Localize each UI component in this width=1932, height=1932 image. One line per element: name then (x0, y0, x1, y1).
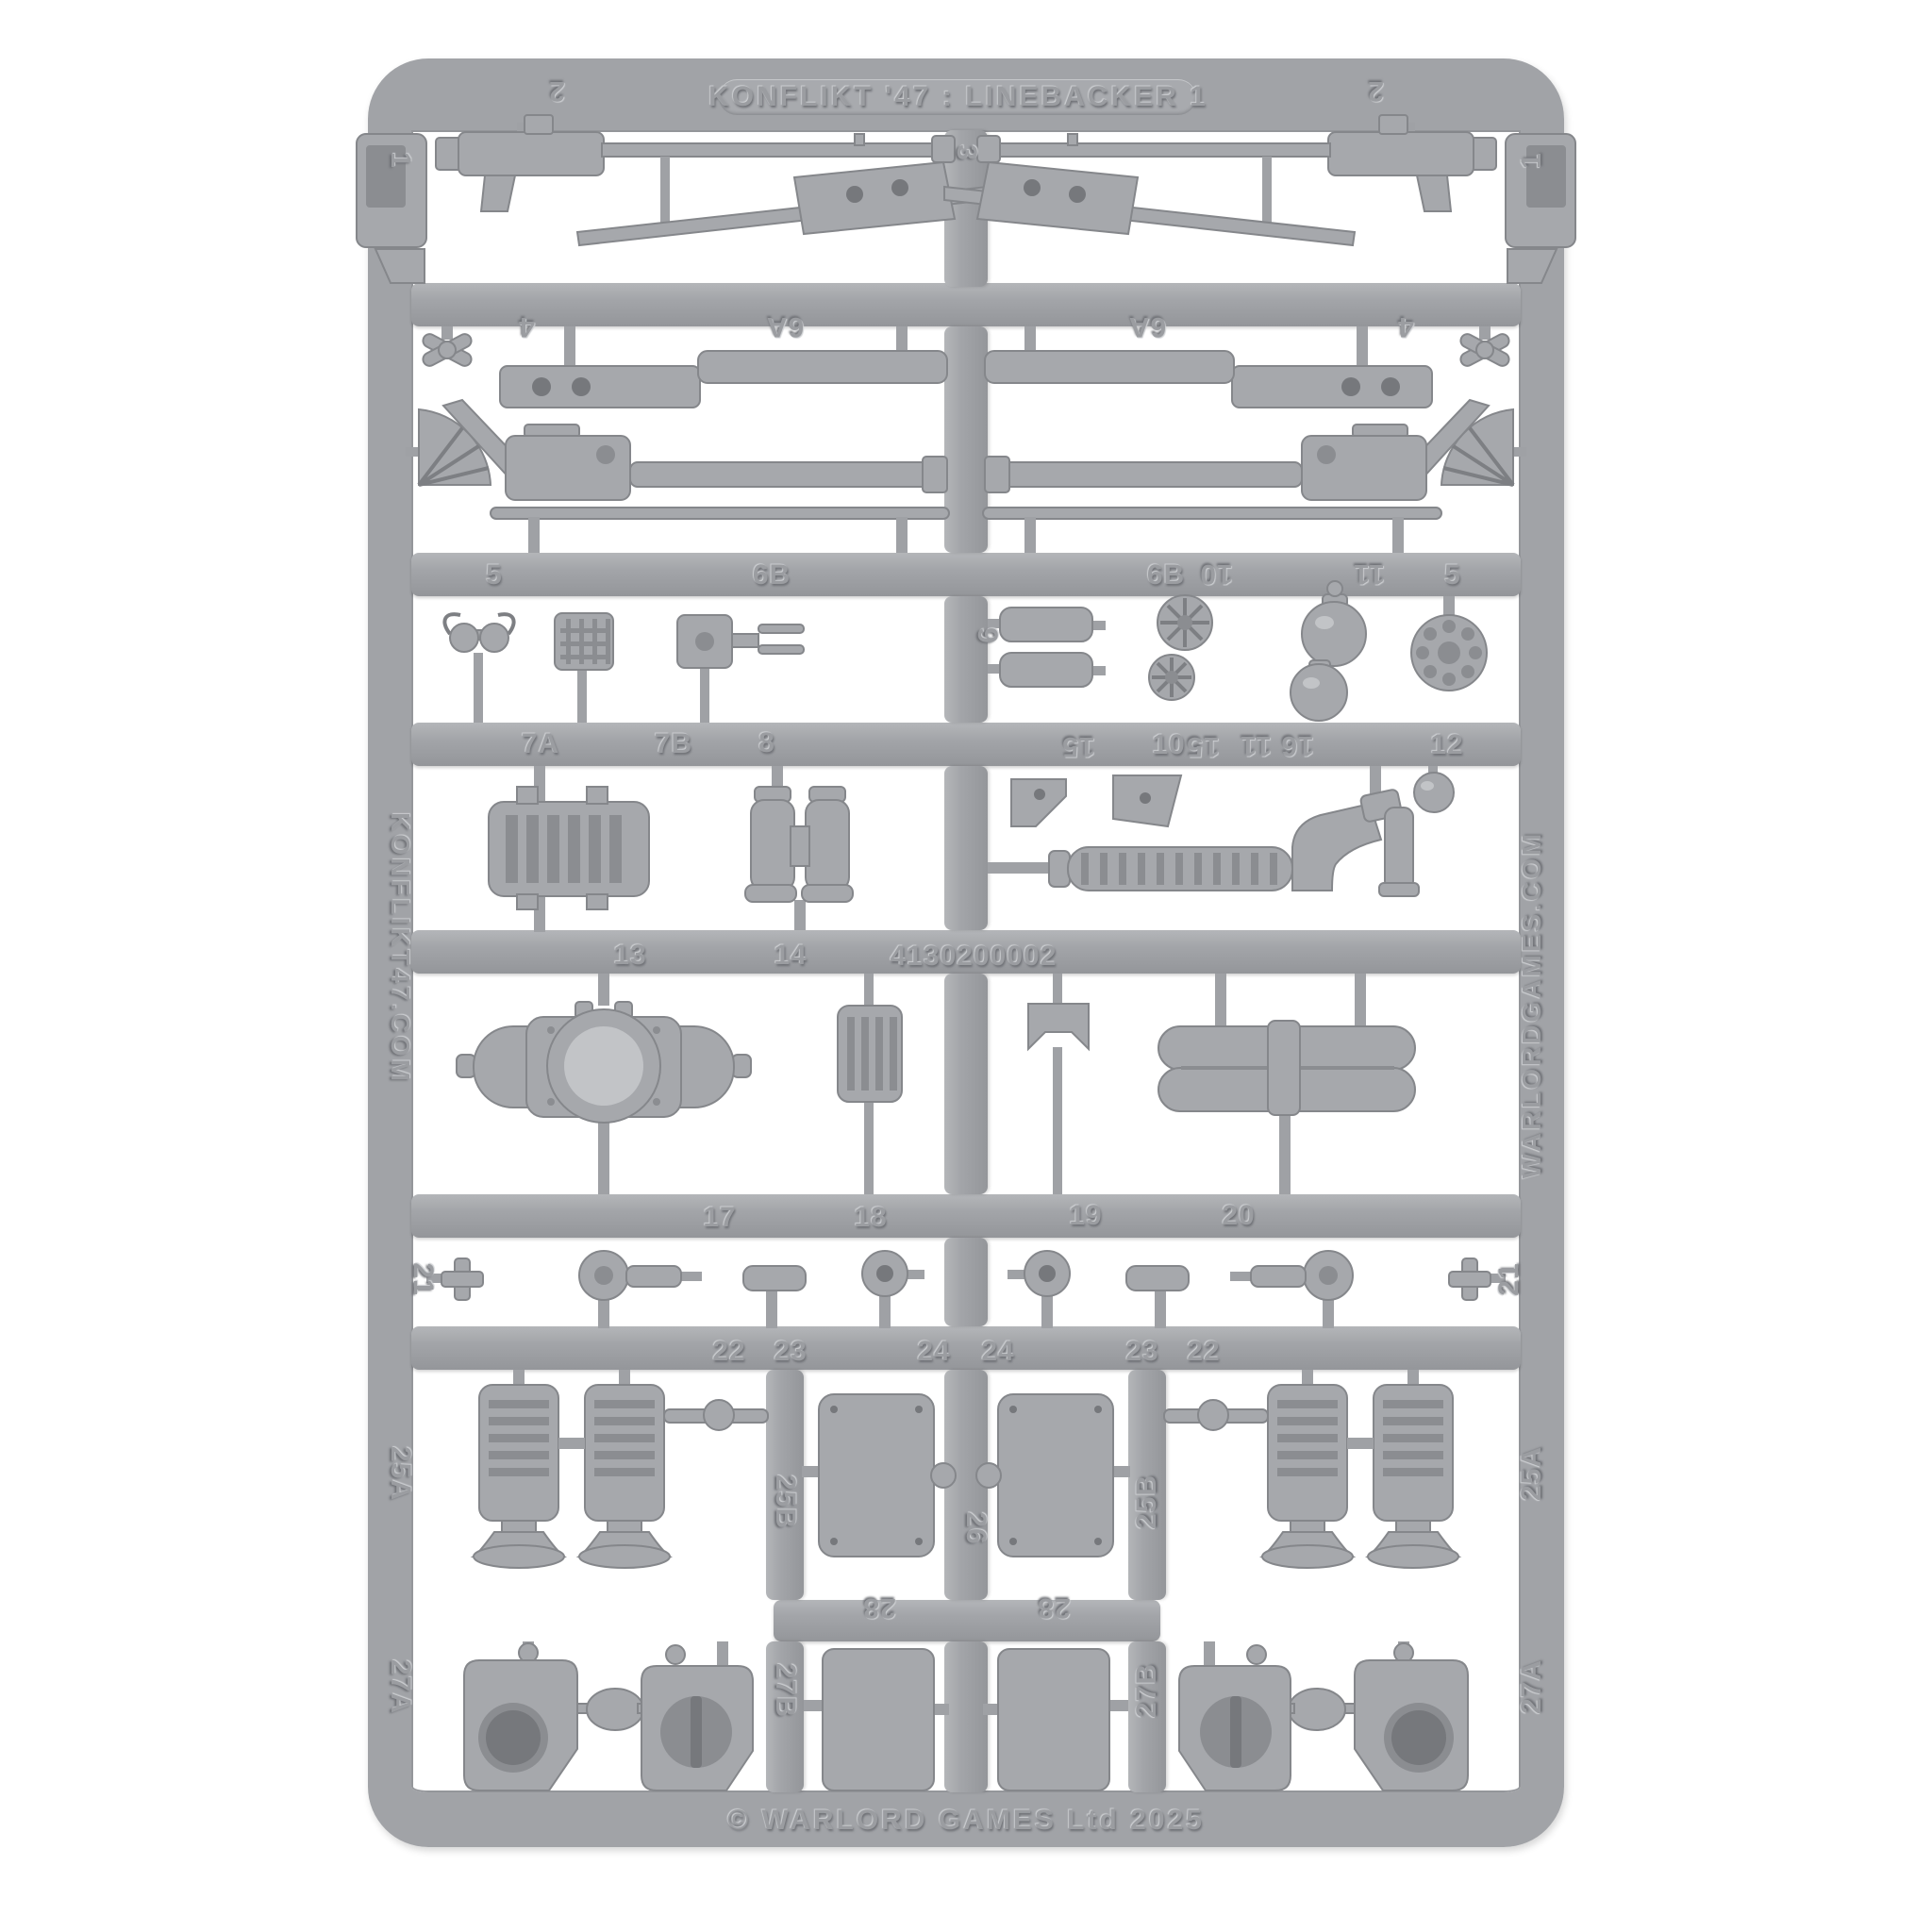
part-ball-row4 (1414, 766, 1454, 812)
part-6-gun-assembly (443, 326, 949, 553)
part-14-binoculars (745, 766, 853, 930)
sprue-photo: KONFLIKT '47 : LINEBACKER 1 KONFLIKT47.C… (0, 0, 1932, 1932)
part-label-21: 21 (407, 1262, 439, 1295)
part-24-round-joint (862, 1251, 924, 1328)
part-27-hatch-b (641, 1641, 753, 1790)
part-label-6a: 6A (766, 310, 804, 342)
part-label-27a: 27A (384, 1659, 416, 1714)
part-label-27b: 27B (769, 1663, 801, 1718)
part-12-knobbed-cap (1411, 596, 1487, 691)
part-7b-waffle-plate (555, 613, 613, 723)
part-label-18: 18 (854, 1202, 887, 1234)
part-18-grille (838, 974, 902, 1194)
part-label-24: 24 (981, 1336, 1014, 1368)
part-label-20: 20 (1222, 1200, 1255, 1232)
part-7a-goggles (444, 614, 513, 723)
part-label-25b: 25B (769, 1474, 801, 1529)
part-label-7b: 7B (655, 728, 692, 760)
part-label-21: 21 (1493, 1262, 1525, 1295)
part-label-7a: 7A (522, 728, 559, 760)
part-label-4: 4 (1397, 310, 1414, 342)
part-28-panel (804, 1649, 949, 1790)
part-8-fork-tool (677, 615, 804, 723)
part-4-x-bracket (421, 326, 474, 368)
part-label-23: 23 (1125, 1336, 1158, 1368)
part-20-twin-tank (1158, 974, 1415, 1194)
part-label-27b: 27B (1131, 1663, 1163, 1718)
part-label-22: 22 (712, 1336, 745, 1368)
part-label-5: 5 (1444, 559, 1461, 591)
sprue-title: KONFLIKT '47 : LINEBACKER 1 (708, 81, 1208, 113)
part-25-muffler (474, 1370, 564, 1568)
hatch-connector (577, 1689, 651, 1730)
part-label-12: 12 (1430, 729, 1463, 761)
part-label-27a: 27A (1516, 1659, 1548, 1714)
part-label-1: 1 (1516, 152, 1548, 169)
part-15-plates (988, 608, 1106, 687)
copyright-text: © WARLORD GAMES Ltd 2025 (727, 1805, 1205, 1837)
part-label-10: 10 (1152, 729, 1185, 761)
part-10-spoked-wheels (1149, 595, 1212, 700)
part-27-hatch-a (464, 1641, 577, 1790)
product-code: 4130200002 (891, 941, 1058, 973)
part-label-5: 5 (486, 559, 503, 591)
part-label-11: 11 (1240, 729, 1272, 761)
part-label-9: 9 (971, 627, 1003, 644)
part-label-25b: 25B (1131, 1474, 1163, 1529)
part-11-grenades (1291, 581, 1366, 721)
part-label-28: 28 (862, 1591, 895, 1624)
part-label-6b: 6B (1147, 559, 1185, 591)
part-label-25a: 25A (1516, 1446, 1548, 1501)
part-label-14: 14 (774, 940, 807, 972)
part-label-4: 4 (518, 310, 535, 342)
part-label-25a: 25A (384, 1446, 416, 1501)
part-label-2: 2 (1367, 75, 1384, 107)
muffler-arm (664, 1400, 768, 1430)
part-label-23: 23 (774, 1336, 807, 1368)
right-rail-url: WARLORDGAMES.COM (1517, 831, 1547, 1178)
part-label-15: 15 (1186, 730, 1219, 762)
part-13-radiator (489, 766, 649, 932)
part-label-28: 28 (1037, 1591, 1070, 1624)
part-label-2: 2 (548, 75, 565, 107)
part-25-muffler-2 (579, 1370, 670, 1568)
part-label-1: 1 (384, 152, 416, 169)
part-17-boiler (457, 974, 751, 1194)
part-label-15: 15 (1061, 730, 1094, 762)
part-label-10: 10 (1199, 558, 1232, 590)
part-label-19: 19 (1069, 1200, 1102, 1232)
part-19-clip (1028, 974, 1089, 1194)
part-26-panel (802, 1394, 956, 1557)
part-label-16: 16 (1280, 729, 1313, 761)
part-22-cylinder-joint (579, 1251, 702, 1328)
part-label-11: 11 (1353, 558, 1385, 590)
part-brackets-row4 (1011, 775, 1181, 826)
part-label-3: 3 (950, 144, 982, 161)
part-label-6b: 6B (753, 559, 791, 591)
left-rail-url: KONFLIKT47.COM (385, 812, 415, 1084)
part-label-17: 17 (703, 1202, 736, 1234)
part-23-block (743, 1266, 806, 1328)
part-3-gun-cradle (577, 157, 988, 245)
part-label-22: 22 (1187, 1336, 1220, 1368)
part-label-13: 13 (613, 940, 646, 972)
part-label-6a: 6A (1128, 310, 1166, 342)
part-label-26: 26 (959, 1511, 991, 1544)
part-label-24: 24 (917, 1336, 950, 1368)
muffler-connector (558, 1438, 585, 1449)
part-label-8: 8 (758, 727, 775, 759)
